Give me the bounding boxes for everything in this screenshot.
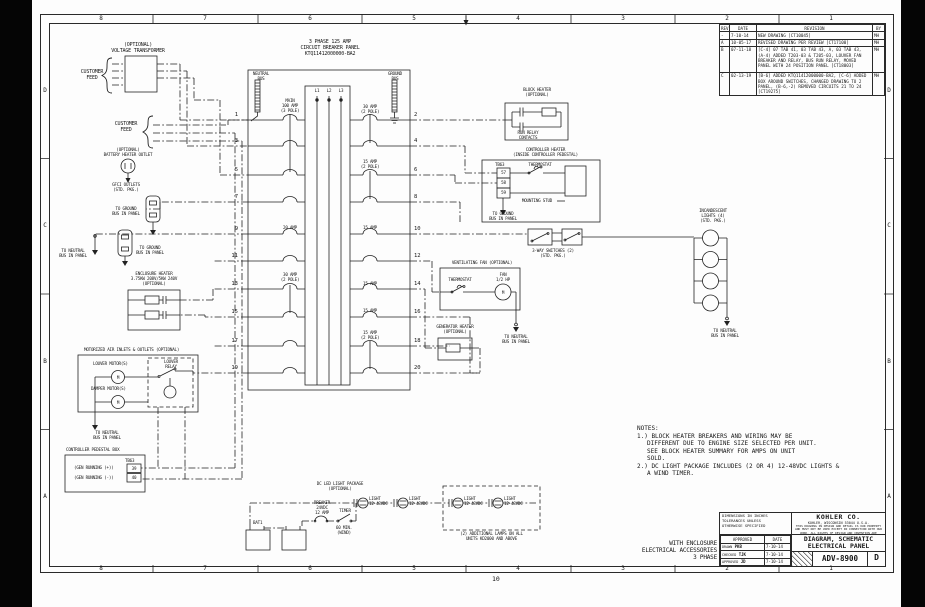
to-neutral-bus-label: TO NEUTRAL BUS IN PANEL — [496, 334, 536, 344]
circuit-number: 18 — [414, 338, 421, 344]
zone-col: 1 — [827, 15, 835, 22]
ventilating-fan-label: VENTILATING FAN (OPTIONAL) — [446, 260, 518, 265]
left-margin-bar — [0, 0, 32, 607]
battery-label: BAT1 — [253, 520, 271, 525]
controller-heater-label: CONTROLLER HEATER (INSIDE CONTROLLER PED… — [488, 147, 603, 157]
revision-row: C 02-13-19 [B-6] ADDED KTQ11412000000-BA… — [720, 72, 885, 95]
zone-row: B — [41, 358, 49, 365]
phase-l1: L1 — [313, 88, 321, 93]
dc-light-label: LIGHT 12-48VDC — [504, 496, 532, 506]
dc-led-package-label: DC LED LIGHT PACKAGE (OPTIONAL) — [308, 481, 372, 491]
revision-row: A 10-05-17 REVISED DRAWING PER REVIEW [C… — [720, 39, 885, 46]
right-margin-bar — [901, 0, 925, 607]
timer-duration-label: 60 MIN. (WIND) — [333, 525, 355, 535]
zone-col: 4 — [514, 565, 522, 572]
terminal-40: 40 — [128, 475, 140, 480]
customer-feed-label: CUSTOMER FEED — [78, 70, 106, 82]
fan-hp-label: FAN 1/2 HP — [492, 272, 514, 282]
circuit-number: 5 — [228, 167, 238, 173]
terminal-39: 39 — [128, 466, 140, 471]
zone-col: 2 — [723, 15, 731, 22]
breaker-label-c18: 15 AMP (2 POLE) — [352, 330, 388, 340]
dc-light-label: LIGHT 12-48VDC — [409, 496, 437, 506]
zone-col: 8 — [97, 15, 105, 22]
circuit-number: 7 — [228, 194, 238, 200]
mounting-stud-label: MOUNTING STUD — [518, 198, 556, 203]
zone-col: 6 — [306, 565, 314, 572]
rev-col-header: REV — [720, 25, 730, 32]
enclosure-heater-label: ENCLOSURE HEATER 3.75KW 208V/5KW 240V (O… — [122, 271, 186, 286]
drawing-number: ADV-8900 — [813, 552, 868, 566]
circuit-number: 9 — [228, 226, 238, 232]
heater-tb-label: TB63 — [495, 162, 511, 167]
incandescent-lights-label: INCANDESCENT LIGHTS (4) (STD. PKG.) — [688, 208, 738, 223]
gfci-outlets-label: GFCI OUTLETS (STD. PKG.) — [105, 182, 147, 192]
motor-m-symbol: M — [115, 375, 122, 380]
gen-running-minus-label: (GEN RUNNING (-)) — [74, 475, 128, 480]
circuit-number: 12 — [414, 253, 421, 259]
zone-row: B — [885, 358, 893, 365]
approval-row: APPROVED JD 7-10-14 — [721, 558, 791, 566]
circuit-number: 16 — [414, 309, 421, 315]
inner-border — [49, 23, 886, 567]
dc-light-label: LIGHT 12-48VDC — [369, 496, 397, 506]
zone-col: 6 — [306, 15, 314, 22]
breaker-label-c6: 15 AMP (2 POLE) — [352, 159, 388, 169]
thermostat-label: THERMOSTAT — [442, 277, 478, 282]
proprietary-note: THIS DRAWING IN DESIGN AND DETAIL IS OUR… — [792, 525, 885, 535]
controller-pedestal-label: CONTROLLER PEDESTAL BOX — [66, 447, 151, 452]
circuit-number: 19 — [226, 365, 238, 371]
dc-light-label: LIGHT 12-48VDC — [464, 496, 492, 506]
terminal-58: 58 — [498, 180, 509, 185]
phase-l3: L3 — [337, 88, 345, 93]
drawing-title: DIAGRAM, SCHEMATIC ELECTRICAL PANEL — [792, 535, 885, 552]
terminal-57: 57 — [498, 170, 509, 175]
zone-col: 5 — [410, 15, 418, 22]
zone-col: 5 — [410, 565, 418, 572]
thermostat-label: THERMOSTAT — [520, 162, 560, 167]
block-heater-label: BLOCK HEATER (OPTIONAL) — [512, 87, 562, 97]
circuit-number: 3 — [228, 138, 238, 144]
to-ground-bus-label: TO GROUND BUS IN PANEL — [130, 245, 170, 255]
circuit-number: 13 — [226, 281, 238, 287]
circuit-number: 4 — [414, 138, 417, 144]
breaker-label-c10: 15 AMP — [352, 225, 388, 230]
zone-col: 7 — [201, 15, 209, 22]
to-ground-bus-label: TO GROUND BUS IN PANEL — [483, 211, 523, 221]
breaker-label-c2: 30 AMP (2 POLE) — [352, 104, 388, 114]
generator-heater-label: GENERATOR HEATER (OPTIONAL) — [432, 324, 478, 334]
note-2: 2.) DC LIGHT PACKAGE INCLUDES (2 OR 4) 1… — [637, 463, 862, 477]
zone-row: A — [41, 493, 49, 500]
scale-hatch — [792, 552, 813, 566]
dc-breaker-label: BREAKER 24VDC 12 AMP — [308, 500, 336, 515]
ground-bus-label: GROUND BUS — [379, 71, 411, 81]
motor-m-symbol: M — [115, 400, 122, 405]
circuit-number: 20 — [414, 365, 421, 371]
revision-row: - 7-10-14 NEW DRAWING [CT10045] MH — [720, 32, 885, 39]
additional-lamps-note: (2) ADDITIONAL LAMPS ON ALL UNITS KD2000… — [443, 531, 540, 541]
circuit-number: 11 — [226, 253, 238, 259]
zone-row: D — [885, 87, 893, 94]
breaker-label-c16: 15 AMP — [352, 308, 388, 313]
approval-row: DRAWN PKB 7-10-14 — [721, 543, 791, 551]
title-block-right: KOHLER CO. KOHLER, WISCONSIN 53044 U.S.A… — [792, 513, 885, 566]
motor-m-symbol: M — [500, 290, 507, 295]
revision-header-row: REV DATE REVISION BY — [720, 25, 885, 32]
zone-col: 4 — [514, 15, 522, 22]
company-block: KOHLER CO. KOHLER, WISCONSIN 53044 U.S.A… — [792, 513, 885, 535]
to-neutral-bus-label: TO NEUTRAL BUS IN PANEL — [53, 248, 93, 258]
zone-row: A — [885, 493, 893, 500]
circuit-number: 15 — [226, 309, 238, 315]
approval-row: CHECKED TJK 7-10-14 — [721, 551, 791, 559]
circuit-number: 10 — [414, 226, 421, 232]
notes-block: NOTES: 1.) BLOCK HEATER BREAKERS AND WIR… — [637, 425, 862, 477]
damper-motors-label: DAMPER MOTOR(S) — [91, 386, 137, 391]
voltage-transformer-label: (OPTIONAL) VOLTAGE TRANSFORMER — [93, 43, 183, 55]
circuit-number: 8 — [414, 194, 417, 200]
battery-heater-outlet-label: (OPTIONAL) BATTERY HEATER OUTLET — [88, 147, 168, 157]
gen-running-plus-label: (GEN RUNNING (+)) — [74, 465, 128, 470]
pedestal-tb-label: TB63 — [125, 458, 141, 463]
motorized-air-label: MOTORIZED AIR INLETS & OUTLETS (OPTIONAL… — [84, 347, 214, 352]
title-block-left: DIMENSIONS IN INCHES TOLERANCES UNLESS O… — [720, 513, 792, 566]
circuit-number: 1 — [228, 112, 238, 118]
customer-feed-label: CUSTOMER FEED — [112, 122, 140, 134]
breaker-label-c13: 30 AMP (2 POLE) — [272, 272, 308, 282]
drawing-number-row: ADV-8900 D — [792, 552, 885, 566]
revision-table: REV DATE REVISION BY - 7-10-14 NEW DRAWI… — [719, 24, 885, 96]
terminal-59: 59 — [498, 190, 509, 195]
breaker-label-main: MAIN 100 AMP (3 POLE) — [272, 98, 308, 113]
title-block: DIMENSIONS IN INCHES TOLERANCES UNLESS O… — [719, 512, 886, 567]
louver-relay-label: LOUVER RELAY — [157, 359, 185, 369]
revision-col-header: REVISION — [757, 25, 873, 32]
run-relay-contacts-label: RUN RELAY CONTACTS — [511, 130, 545, 140]
to-neutral-bus-label: TO NEUTRAL BUS IN PANEL — [703, 328, 747, 338]
to-ground-bus-label: TO GROUND BUS IN PANEL — [105, 206, 147, 216]
panel-title: 3 PHASE 125 AMP CIRCUIT BREAKER PANEL KT… — [285, 40, 375, 58]
circuit-number: 14 — [414, 281, 421, 287]
schematic-sheet: 8 7 6 5 4 3 2 1 8 7 6 5 4 3 2 1 D C B A … — [0, 0, 925, 607]
zone-row: C — [41, 222, 49, 229]
circuit-number: 17 — [226, 338, 238, 344]
company-name: KOHLER CO. — [792, 513, 885, 521]
revision-row: B 07-11-18 [C-4] 07 TAB 41, 03 TAB 43, A… — [720, 46, 885, 72]
drawing-variant-label: WITH ENCLOSURE ELECTRICAL ACCESSORIES 3 … — [580, 540, 717, 562]
page-number: 10 — [492, 575, 500, 583]
zone-row: D — [41, 87, 49, 94]
zone-col: 7 — [201, 565, 209, 572]
zone-col: 3 — [619, 15, 627, 22]
tolerances-note: DIMENSIONS IN INCHES TOLERANCES UNLESS O… — [720, 513, 791, 535]
timer-label: TIMER — [336, 508, 354, 513]
breaker-label-c14: 15 AMP — [352, 281, 388, 286]
revision-letter: D — [868, 552, 885, 566]
notes-title: NOTES: — [637, 425, 862, 432]
approvals-table: APPROVED DATE DRAWN PKB 7-10-14 CHECKED … — [720, 535, 791, 566]
date-col-header: DATE — [730, 25, 757, 32]
by-col-header: BY — [873, 25, 885, 32]
to-neutral-bus-label: TO NEUTRAL BUS IN PANEL — [85, 430, 129, 440]
circuit-number: 6 — [414, 167, 417, 173]
circuit-number: 2 — [414, 112, 417, 118]
zone-col: 8 — [97, 565, 105, 572]
breaker-label-c9: 20 AMP — [272, 225, 308, 230]
phase-l2: L2 — [325, 88, 333, 93]
zone-row: C — [885, 222, 893, 229]
louver-motors-label: LOUVER MOTOR(S) — [93, 361, 137, 366]
note-1: 1.) BLOCK HEATER BREAKERS AND WIRING MAY… — [637, 433, 862, 462]
neutral-bus-label: NEUTRAL BUS — [245, 71, 277, 81]
zone-col: 3 — [619, 565, 627, 572]
three-way-switches-label: 3-WAY SWITCHES (2) (STD. PKG.) — [528, 248, 578, 258]
